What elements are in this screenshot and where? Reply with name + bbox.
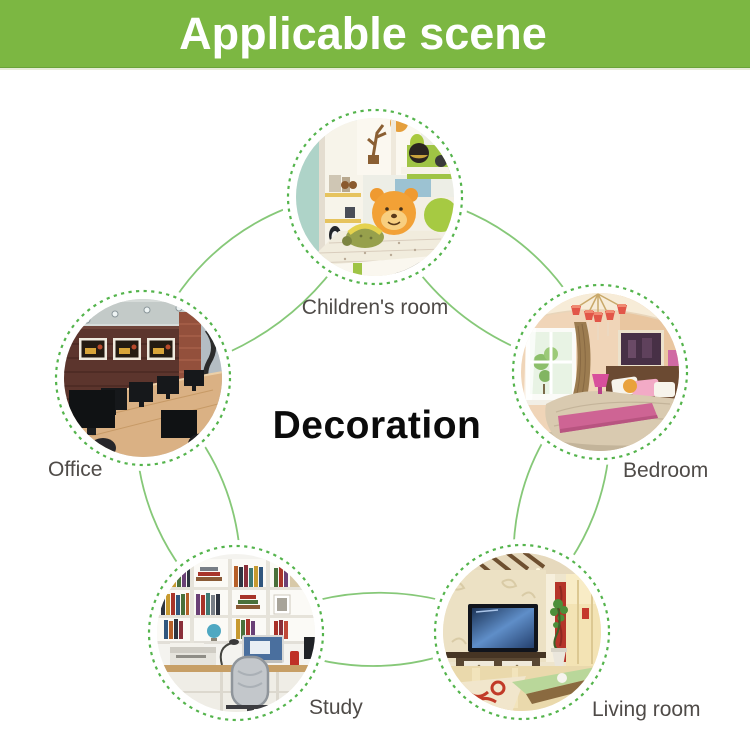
- label-bedroom: Bedroom: [623, 459, 708, 483]
- label-office: Office: [48, 458, 102, 482]
- label-children-room: Children's room: [232, 296, 518, 320]
- center-label: Decoration: [225, 404, 529, 448]
- living-room-photo: [429, 539, 615, 725]
- marketing-image: Applicable scene: [0, 0, 750, 750]
- bedroom-photo: [507, 279, 693, 465]
- label-living-room: Living room: [592, 698, 701, 722]
- study-photo: [143, 540, 329, 726]
- label-study: Study: [309, 696, 363, 720]
- children-room-photo: [282, 104, 468, 290]
- scene-diagram: [0, 0, 750, 750]
- office-photo: [50, 285, 236, 471]
